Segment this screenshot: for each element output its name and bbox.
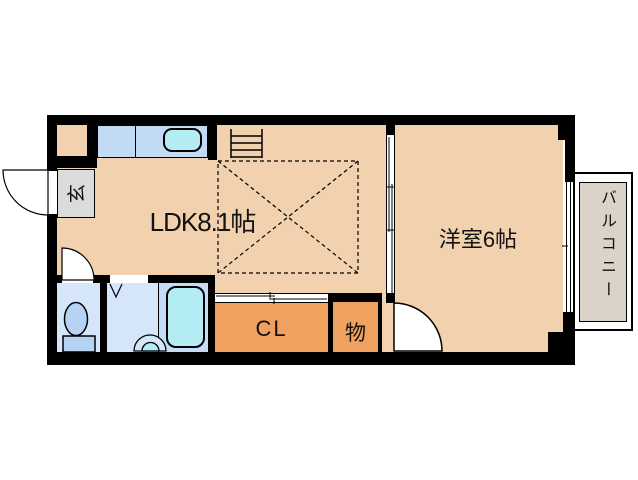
room-ldk-label: LDK8.1帖 [140, 202, 265, 239]
wall-storage-right [378, 302, 382, 352]
wall-bath-closet-divider [208, 275, 215, 352]
genkan-label: 玄 [62, 184, 89, 203]
storage-label: 物 [333, 317, 378, 347]
wall-left-lower [47, 215, 57, 365]
wall-kitchen-stub [208, 115, 217, 160]
sink-icon [163, 128, 202, 152]
wall-partition-top-stub [386, 115, 395, 135]
genkan: 玄 [57, 169, 95, 218]
entrance-door-arc [3, 170, 48, 215]
closet-sliding-door [215, 293, 328, 303]
wall-right-upper-corner [558, 115, 575, 140]
wall-right-upper [565, 140, 575, 182]
wall-bottom-step [548, 332, 563, 352]
kitchen-counter-divider [135, 125, 136, 158]
bathtub-icon [166, 286, 205, 348]
bathroom-door-opening [110, 275, 148, 283]
wall-top [47, 115, 575, 125]
wall-alcove-bottom [47, 156, 97, 168]
sliding-door-partition [386, 135, 395, 293]
entrance-door-slot [47, 170, 57, 215]
wall-storage-top [330, 293, 382, 302]
wall-right-lower [563, 312, 575, 365]
closet-label: CL [215, 316, 328, 342]
room-western-label: 洋室6帖 [428, 222, 528, 254]
wall-partition-bottom-stub [386, 293, 395, 303]
wall-bottom [47, 352, 563, 365]
toilet-door-opening [62, 275, 93, 283]
balcony-label: バルコニー [594, 189, 618, 304]
toilet-room [57, 283, 100, 352]
wall-toilet-bath-divider [100, 283, 107, 352]
floor-plan: 玄 バルコニー [0, 0, 638, 480]
